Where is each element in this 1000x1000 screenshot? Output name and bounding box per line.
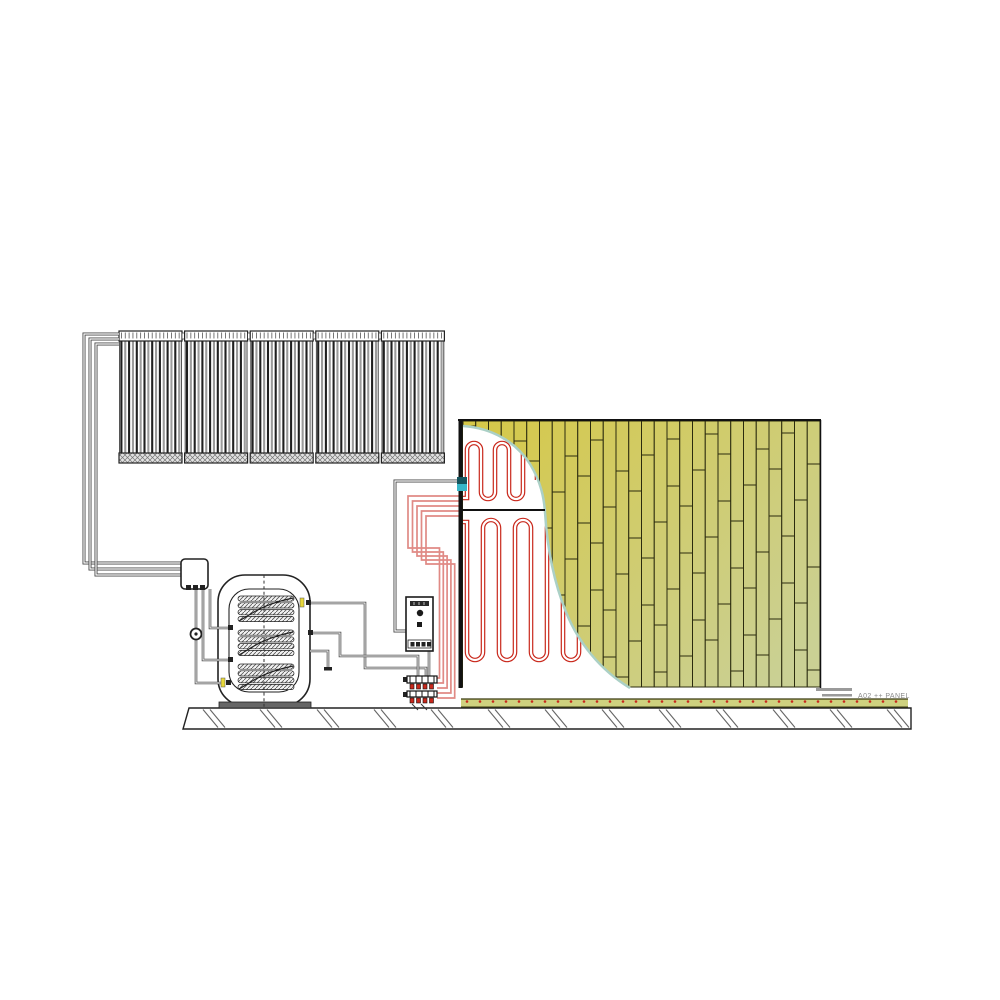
floor-heating-strip bbox=[461, 699, 908, 707]
pump-station-unit bbox=[406, 597, 433, 651]
collector-panel bbox=[250, 331, 316, 463]
ground-slab bbox=[183, 708, 911, 729]
solar-collector-array bbox=[119, 331, 444, 463]
collector-panel bbox=[119, 331, 185, 463]
panel-label-leader bbox=[816, 688, 852, 691]
panel-label: A02 ++ PANEL bbox=[816, 688, 910, 700]
radiant-wall bbox=[457, 420, 821, 688]
panel-label-text: A02 ++ PANEL bbox=[858, 693, 910, 700]
buffer-tank bbox=[218, 575, 311, 708]
circulation-pump-icon bbox=[191, 629, 202, 640]
collector-panel bbox=[316, 331, 382, 463]
sensor-fitting-icon bbox=[457, 477, 467, 491]
collector-panel bbox=[185, 331, 251, 463]
diagram-canvas: A02 ++ PANEL bbox=[0, 0, 1000, 1000]
solar-radiant-heating-schematic: A02 ++ PANEL bbox=[0, 0, 1000, 1000]
distribution-manifold bbox=[403, 676, 437, 710]
collector-panel bbox=[381, 331, 444, 463]
solar-controller bbox=[181, 559, 208, 590]
